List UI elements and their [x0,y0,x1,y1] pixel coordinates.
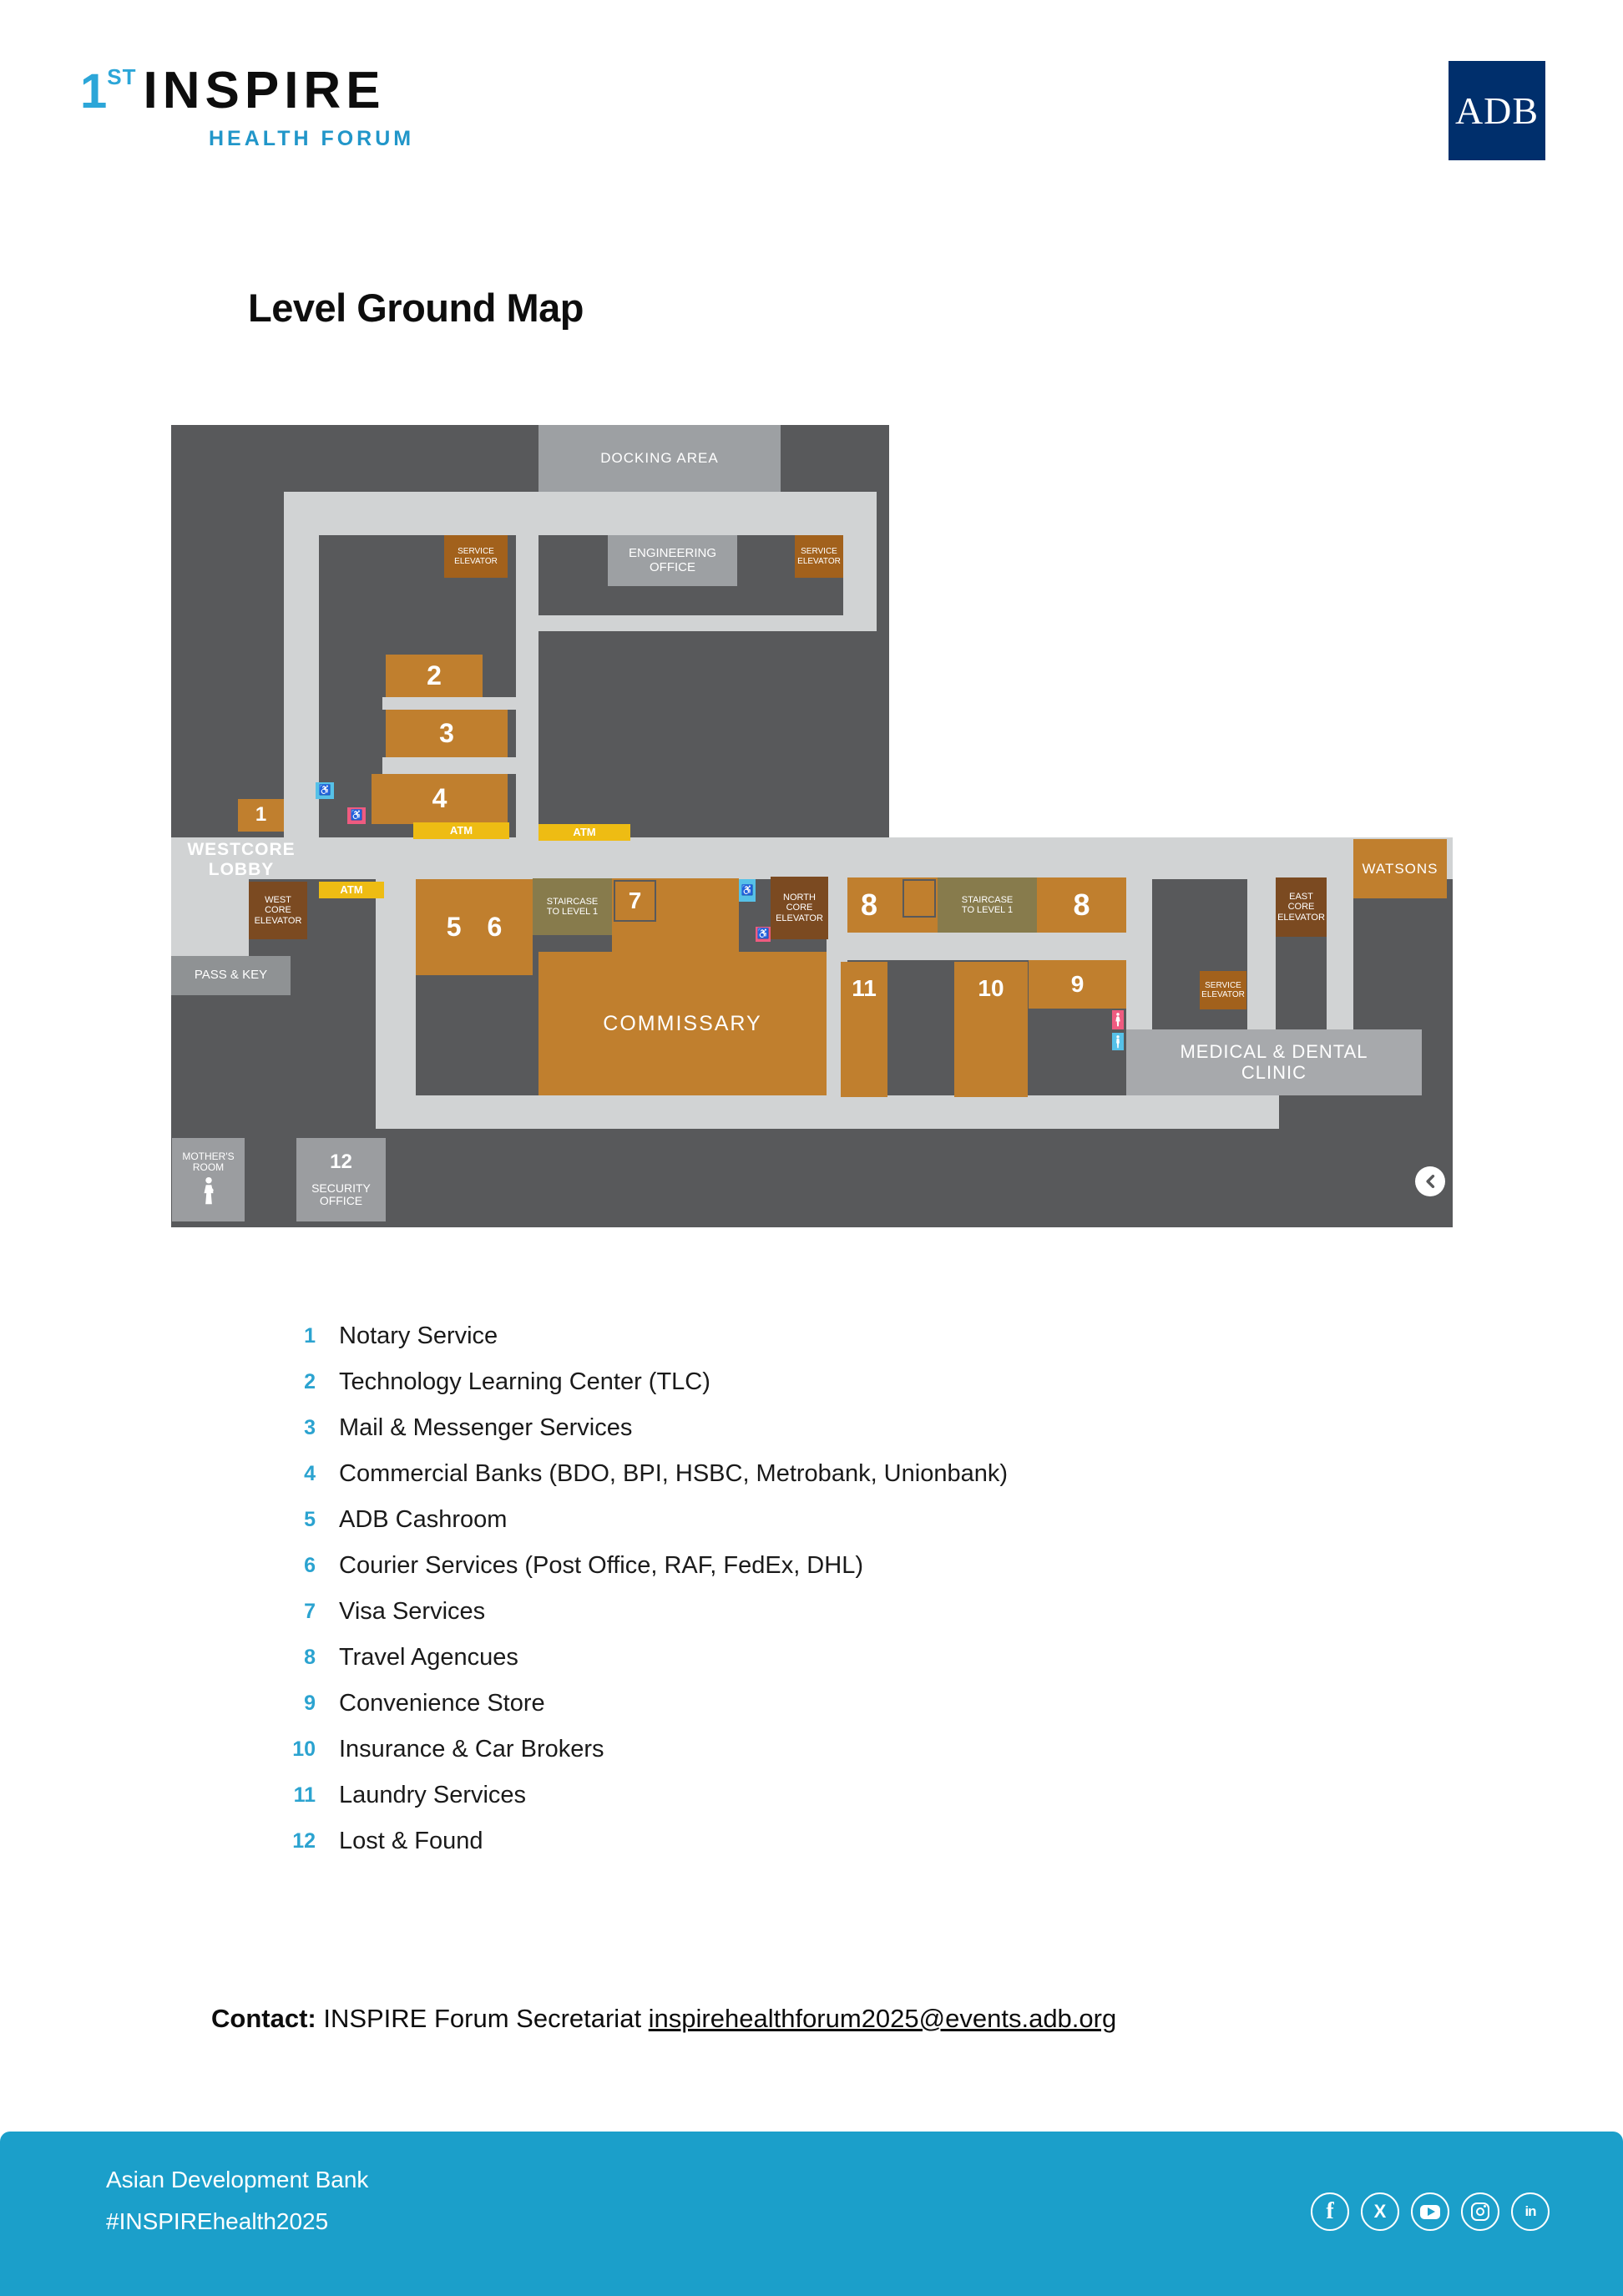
map-west-core-elevator: WEST CORE ELEVATOR [249,882,307,939]
logo-ordinal: ST [107,64,136,89]
footer-org-name: Asian Development Bank [106,2167,368,2193]
social-links: f X in [1311,2192,1550,2231]
map-atm-1: ATM [413,822,509,839]
legend-label: Convenience Store [339,1690,545,1717]
corridor-segment [843,492,877,631]
corridor-segment [827,933,1152,960]
map-staircase-2: STAIRCASE TO LEVEL 1 [938,877,1037,933]
legend-item: 10Insurance & Car Brokers [281,1727,1383,1773]
instagram-icon[interactable] [1461,2192,1499,2231]
corridor-segment [1126,877,1152,1029]
restroom-accessible-female-icon: ♿ [756,927,771,942]
legend-label: ADB Cashroom [339,1506,507,1534]
map-area-pass-key: PASS & KEY [171,956,291,995]
corridor-segment [284,492,877,535]
legend-number: 3 [281,1416,316,1440]
contact-email-link[interactable]: inspirehealthforum2025@events.adb.org [649,2004,1117,2033]
map-area-mothers-room: MOTHER'S ROOM [172,1138,245,1221]
legend-label: Technology Learning Center (TLC) [339,1368,710,1396]
restroom-accessible-female-icon: ♿ [347,807,366,824]
map-room-7: 7 [614,880,656,922]
legend-label: Notary Service [339,1322,498,1350]
map-room-2: 2 [386,655,483,697]
map-area-docking: DOCKING AREA [538,425,781,492]
legend-label: Laundry Services [339,1782,526,1809]
corridor-segment [284,492,319,837]
legend-item: 6Courier Services (Post Office, RAF, Fed… [281,1543,1383,1589]
legend-item: 3Mail & Messenger Services [281,1405,1383,1451]
restroom-male-icon [1112,1033,1124,1050]
youtube-icon[interactable] [1411,2192,1449,2231]
map-room-8b: 8 [1037,877,1126,933]
legend-item: 8Travel Agencues [281,1635,1383,1681]
contact-line: Contact: INSPIRE Forum Secretariat inspi… [211,2004,1116,2034]
map-atm-2: ATM [538,824,630,841]
map-east-core-elevator: EAST CORE ELEVATOR [1276,877,1327,937]
linkedin-icon[interactable]: in [1511,2192,1550,2231]
legend-number: 5 [281,1508,316,1532]
legend-label: Lost & Found [339,1828,483,1855]
inspire-logo: 1STINSPIRE [80,65,386,117]
legend-label: Travel Agencues [339,1644,518,1671]
legend-number: 7 [281,1600,316,1624]
map-area-medical-dental-clinic: MEDICAL & DENTAL CLINIC [1126,1029,1422,1095]
legend-label: Visa Services [339,1598,485,1626]
legend-number: 9 [281,1692,316,1716]
restroom-accessible-male-icon: ♿ [316,782,334,799]
map-legend: 1Notary Service 2Technology Learning Cen… [281,1313,1383,1864]
legend-number: 11 [281,1783,316,1808]
map-area-westcore-lobby: WESTCORE LOBBY [171,838,311,882]
legend-number: 12 [281,1829,316,1853]
legend-number: 10 [281,1737,316,1762]
security-office-number: 12 [330,1151,352,1174]
logo-subtitle: HEALTH FORUM [209,127,414,151]
main-corridor [171,837,1453,879]
x-twitter-icon[interactable]: X [1361,2192,1399,2231]
map-service-elevator-3: SERVICE ELEVATOR [1200,971,1246,1009]
footer-hashtag: #INSPIREhealth2025 [106,2208,328,2235]
restroom-female-icon [1112,1010,1124,1029]
corridor-segment [171,879,249,956]
restroom-accessible-male-icon: ♿ [739,879,756,902]
map-staircase-1: STAIRCASE TO LEVEL 1 [533,878,612,935]
legend-item: 2Technology Learning Center (TLC) [281,1359,1383,1405]
logo-wordmark: INSPIRE [144,62,386,119]
map-atm-3: ATM [319,882,384,898]
map-room-3: 3 [386,710,508,757]
map-area-commissary: COMMISSARY [538,952,827,1095]
corridor-segment [1247,877,1276,1029]
adb-logo: ADB [1449,61,1545,160]
map-service-elevator-1: SERVICE ELEVATOR [444,535,508,578]
corridor-segment [1327,879,1353,1029]
legend-item: 1Notary Service [281,1313,1383,1359]
map-room-11: 11 [841,962,887,1097]
map-room-1: 1 [238,799,284,832]
legend-item: 12Lost & Found [281,1818,1383,1864]
contact-text: INSPIRE Forum Secretariat [316,2004,649,2033]
map-room-5-6: 5 6 [416,879,533,975]
corridor-segment [538,615,877,631]
map-room-8a-inner-box [903,879,936,918]
adb-logo-text: ADB [1455,89,1539,133]
map-area-watsons: WATSONS [1353,839,1447,898]
corridor-segment [382,757,516,774]
corridor-segment [516,535,538,837]
page-title: Level Ground Map [248,285,584,331]
legend-number: 1 [281,1324,316,1348]
map-room-4: 4 [372,774,508,824]
corridor-segment [382,697,516,710]
legend-item: 11Laundry Services [281,1773,1383,1818]
corridor-segment [376,879,416,1129]
map-room-9: 9 [1029,960,1126,1009]
map-service-elevator-2: SERVICE ELEVATOR [795,535,843,578]
facebook-icon[interactable]: f [1311,2192,1349,2231]
legend-item: 9Convenience Store [281,1681,1383,1727]
legend-item: 7Visa Services [281,1589,1383,1635]
legend-label: Courier Services (Post Office, RAF, FedE… [339,1552,863,1580]
legend-number: 4 [281,1462,316,1486]
map-north-core-elevator: NORTH CORE ELEVATOR [771,877,828,939]
map-area-engineering-office: ENGINEERING OFFICE [608,535,737,586]
map-area-security-office: 12 SECURITY OFFICE [296,1138,386,1221]
legend-label: Mail & Messenger Services [339,1414,632,1442]
legend-label: Commercial Banks (BDO, BPI, HSBC, Metrob… [339,1460,1008,1488]
logo-number: 1 [80,64,107,119]
map-room-10: 10 [954,962,1028,1097]
mothers-room-label: MOTHER'S ROOM [182,1151,234,1174]
legend-number: 8 [281,1646,316,1670]
mother-icon [200,1176,218,1208]
legend-number: 6 [281,1554,316,1578]
legend-item: 5ADB Cashroom [281,1497,1383,1543]
legend-label: Insurance & Car Brokers [339,1736,604,1763]
legend-number: 2 [281,1370,316,1394]
security-office-label: SECURITY OFFICE [311,1182,371,1208]
contact-label: Contact: [211,2004,316,2033]
legend-item: 4Commercial Banks (BDO, BPI, HSBC, Metro… [281,1451,1383,1497]
corridor-segment [376,1095,1279,1129]
chevron-left-icon [1424,1175,1436,1188]
collapse-map-button[interactable] [1415,1166,1445,1196]
level-ground-map: DOCKING AREA ENGINEERING OFFICE PASS & K… [171,425,1453,1227]
